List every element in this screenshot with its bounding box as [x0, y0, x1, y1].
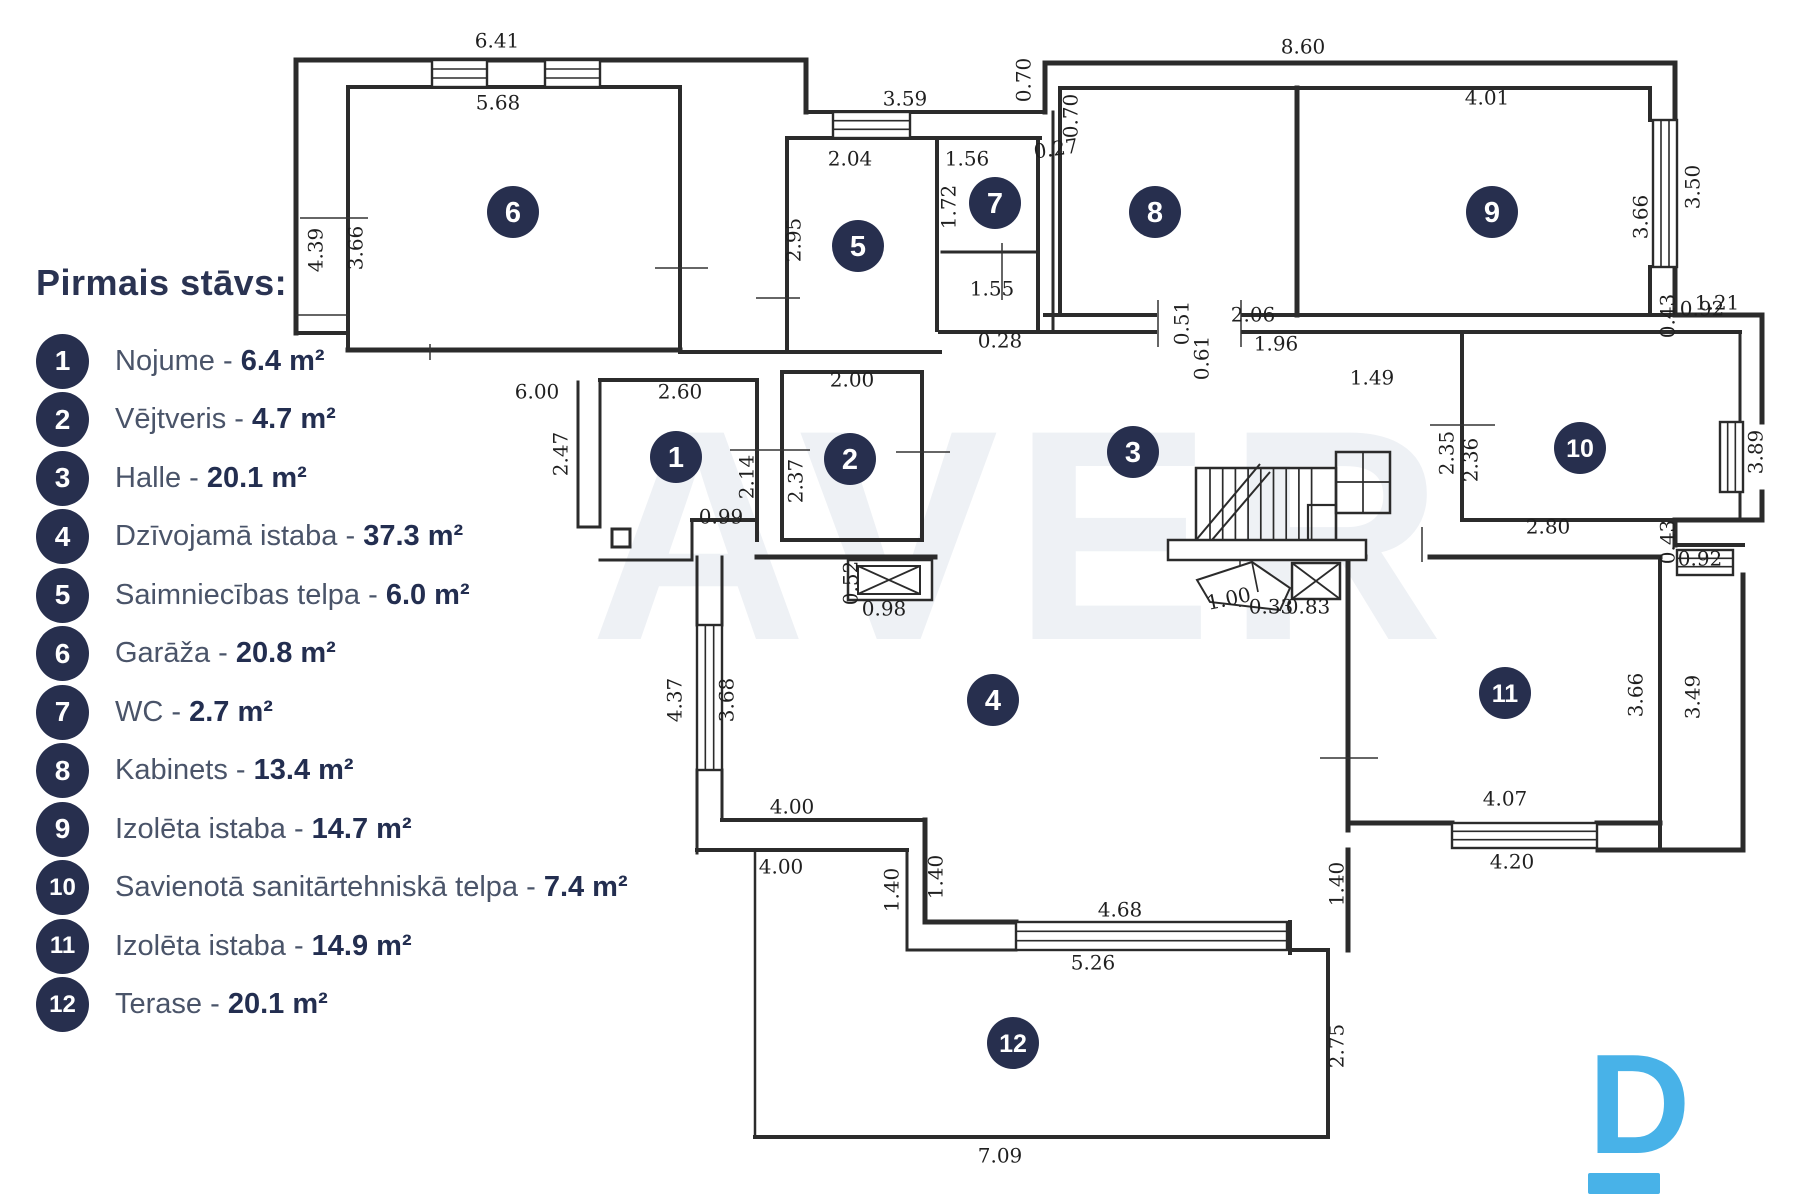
- legend-room-area: 14.9 m²: [312, 930, 412, 962]
- legend-room-area: 14.7 m²: [312, 813, 412, 845]
- dimension-label: 1.40: [880, 868, 904, 913]
- legend-room-area: 20.1 m²: [207, 462, 307, 494]
- legend-badge: 6: [36, 626, 89, 681]
- window-icon: [1720, 422, 1743, 492]
- legend-badge: 9: [36, 802, 89, 857]
- legend-item: 3Halle - 20.1 m²: [36, 451, 628, 505]
- legend-item: 7WC - 2.7 m²: [36, 685, 628, 739]
- dimension-label: 0.27: [1032, 134, 1079, 164]
- dimension-label: 0.70: [1012, 58, 1036, 103]
- dimension-label: 4.01: [1465, 86, 1510, 110]
- legend-badge: 5: [36, 568, 89, 623]
- room-badge-number: 1: [668, 442, 684, 474]
- dimension-label: 5.26: [1071, 951, 1116, 975]
- window-icon: [432, 60, 487, 87]
- window-icon: [1452, 823, 1597, 848]
- window-icon: [545, 60, 600, 87]
- dimension-label: 3.49: [1681, 675, 1705, 720]
- legend-item: 4Dzīvojamā istaba - 37.3 m²: [36, 510, 628, 564]
- legend-room-label: Halle - 20.1 m²: [115, 462, 307, 495]
- room-badge-number: 8: [1147, 197, 1163, 229]
- dimension-label: 5.68: [476, 91, 521, 115]
- window-icon: [833, 112, 910, 138]
- legend-item: 10Savienotā sanitārtehniskā telpa - 7.4 …: [36, 861, 628, 915]
- legend-room-area: 4.7 m²: [252, 403, 336, 435]
- room-badge-number: 7: [987, 188, 1003, 220]
- legend-room-label: Dzīvojamā istaba - 37.3 m²: [115, 520, 463, 553]
- dimension-label: 2.04: [828, 147, 873, 171]
- dimension-label: 0.83: [1286, 595, 1331, 619]
- dimension-label: 0.43: [1656, 294, 1680, 339]
- dimension-label: 0.61: [1190, 336, 1214, 381]
- legend-room-name: Halle -: [115, 462, 207, 494]
- dimension-label: 2.36: [1459, 438, 1483, 483]
- legend-room-label: Izolēta istaba - 14.7 m²: [115, 813, 412, 846]
- room-badge-number: 10: [1566, 435, 1594, 463]
- stair-landing: [1168, 540, 1366, 560]
- legend-room-name: Nojume -: [115, 345, 241, 377]
- legend-item: 1Nojume - 6.4 m²: [36, 334, 628, 388]
- legend-room-label: Terase - 20.1 m²: [115, 988, 328, 1021]
- legend-title: Pirmais stāvs:: [36, 262, 628, 304]
- dimension-label: 2.00: [830, 368, 875, 392]
- legend-room-area: 6.0 m²: [386, 579, 470, 611]
- dimension-label: 0.99: [699, 505, 744, 529]
- dimension-label: 3.66: [1629, 195, 1653, 240]
- legend-room-label: Nojume - 6.4 m²: [115, 345, 325, 378]
- dimension-label: 1.49: [1350, 366, 1395, 390]
- legend-badge: 8: [36, 743, 89, 798]
- dimension-label: 7.09: [978, 1144, 1023, 1168]
- dimension-label: 0.92: [1680, 297, 1725, 321]
- dimension-label: 8.60: [1281, 35, 1326, 59]
- legend-room-area: 2.7 m²: [189, 696, 273, 728]
- logo-letter: D: [1588, 1050, 1691, 1161]
- room-badge-number: 5: [850, 231, 866, 263]
- legend-badge: 1: [36, 334, 89, 389]
- legend-room-name: Kabinets -: [115, 754, 254, 786]
- dimension-label: 3.59: [883, 87, 928, 111]
- dimension-label: 4.00: [759, 855, 804, 879]
- dimension-label: 0.43: [1656, 520, 1680, 565]
- dimension-label: 1.40: [1325, 862, 1349, 907]
- dimension-label: 1.56: [945, 147, 990, 171]
- legend-item: 9Izolēta istaba - 14.7 m²: [36, 802, 628, 856]
- legend-badge: 4: [36, 509, 89, 564]
- dimension-label: 2.06: [1231, 303, 1276, 327]
- legend-room-name: Terase -: [115, 988, 228, 1020]
- room-badge-number: 11: [1492, 680, 1519, 708]
- dimension-label: 4.00: [770, 795, 815, 819]
- legend-room-name: Izolēta istaba -: [115, 930, 312, 962]
- legend-item: 12Terase - 20.1 m²: [36, 978, 628, 1032]
- legend-badge: 3: [36, 451, 89, 506]
- legend-room-name: Saimniecības telpa -: [115, 579, 386, 611]
- window-icon: [1653, 120, 1677, 267]
- legend-badge: 10: [36, 860, 89, 915]
- legend-badge: 12: [36, 977, 89, 1032]
- floorplan-page: AVER 6.415.683.592.041.560.700.700.278.6…: [0, 0, 1800, 1200]
- room-badge-number: 2: [842, 444, 858, 476]
- dimension-label: 2.75: [1325, 1024, 1349, 1069]
- legend-room-area: 20.1 m²: [228, 988, 328, 1020]
- dimension-label: 4.37: [663, 678, 687, 723]
- dimension-label: 0.70: [1059, 94, 1083, 139]
- legend-room-label: Izolēta istaba - 14.9 m²: [115, 930, 412, 963]
- legend-room-name: WC -: [115, 696, 189, 728]
- legend-badge: 2: [36, 392, 89, 447]
- legend-room-name: Savienotā sanitārtehniskā telpa -: [115, 871, 544, 903]
- dimension-label: 0.28: [978, 329, 1023, 353]
- legend-item: 5Saimniecības telpa - 6.0 m²: [36, 568, 628, 622]
- dimension-label: 0.92: [1678, 547, 1723, 571]
- window-icon: [1016, 922, 1287, 950]
- legend-room-name: Izolēta istaba -: [115, 813, 312, 845]
- dimension-label: 0.98: [862, 597, 907, 621]
- dimension-label: 4.68: [1098, 898, 1143, 922]
- legend-room-name: Garāža -: [115, 637, 236, 669]
- legend-badge: 7: [36, 685, 89, 740]
- dimension-label: 4.20: [1490, 850, 1535, 874]
- room-badge-number: 3: [1125, 437, 1141, 469]
- dimension-label: 2.60: [658, 380, 703, 404]
- legend-room-label: Vējtveris - 4.7 m²: [115, 403, 336, 436]
- dimension-label: 2.95: [782, 218, 806, 263]
- dimension-label: 3.50: [1681, 165, 1705, 210]
- legend-room-area: 37.3 m²: [363, 520, 463, 552]
- dimension-label: 2.80: [1526, 515, 1571, 539]
- dimension-label: 6.41: [475, 29, 520, 53]
- legend: Pirmais stāvs: 1Nojume - 6.4 m²2Vējtveri…: [36, 262, 628, 1036]
- dimension-label: 1.96: [1254, 332, 1299, 356]
- legend-badge: 11: [36, 919, 89, 974]
- legend-room-label: Garāža - 20.8 m²: [115, 637, 336, 670]
- legend-room-area: 13.4 m²: [254, 754, 354, 786]
- legend-items: 1Nojume - 6.4 m²2Vējtveris - 4.7 m²3Hall…: [36, 334, 628, 1032]
- legend-room-label: Saimniecības telpa - 6.0 m²: [115, 579, 470, 612]
- dimension-label: 1.72: [937, 185, 961, 230]
- dimension-label: 2.37: [784, 459, 808, 504]
- legend-room-label: Savienotā sanitārtehniskā telpa - 7.4 m²: [115, 871, 628, 904]
- dimension-label: 4.07: [1483, 787, 1528, 811]
- legend-room-area: 7.4 m²: [544, 871, 628, 903]
- dimension-label: 3.66: [1624, 673, 1648, 718]
- dimension-label: 3.89: [1744, 430, 1768, 475]
- legend-item: 8Kabinets - 13.4 m²: [36, 744, 628, 798]
- room-badge-number: 12: [999, 1030, 1027, 1058]
- dimension-label: 3.68: [715, 678, 739, 723]
- legend-item: 6Garāža - 20.8 m²: [36, 627, 628, 681]
- dimension-label: 0.52: [839, 561, 863, 606]
- dimension-label: 1.55: [970, 277, 1015, 301]
- legend-room-name: Dzīvojamā istaba -: [115, 520, 363, 552]
- legend-room-label: Kabinets - 13.4 m²: [115, 754, 354, 787]
- room-badge-number: 9: [1484, 197, 1500, 229]
- dimension-label: 2.14: [735, 455, 759, 500]
- brand-logo: D: [1588, 1050, 1691, 1194]
- legend-room-name: Vējtveris -: [115, 403, 252, 435]
- legend-room-area: 20.8 m²: [236, 637, 336, 669]
- dimension-label: 1.40: [924, 855, 948, 900]
- legend-item: 11Izolēta istaba - 14.9 m²: [36, 919, 628, 973]
- room-badge-number: 6: [505, 197, 521, 229]
- legend-room-area: 6.4 m²: [241, 345, 325, 377]
- legend-item: 2Vējtveris - 4.7 m²: [36, 393, 628, 447]
- legend-room-label: WC - 2.7 m²: [115, 696, 273, 729]
- room-badge-number: 4: [985, 685, 1001, 717]
- dimension-label: 2.35: [1435, 431, 1459, 476]
